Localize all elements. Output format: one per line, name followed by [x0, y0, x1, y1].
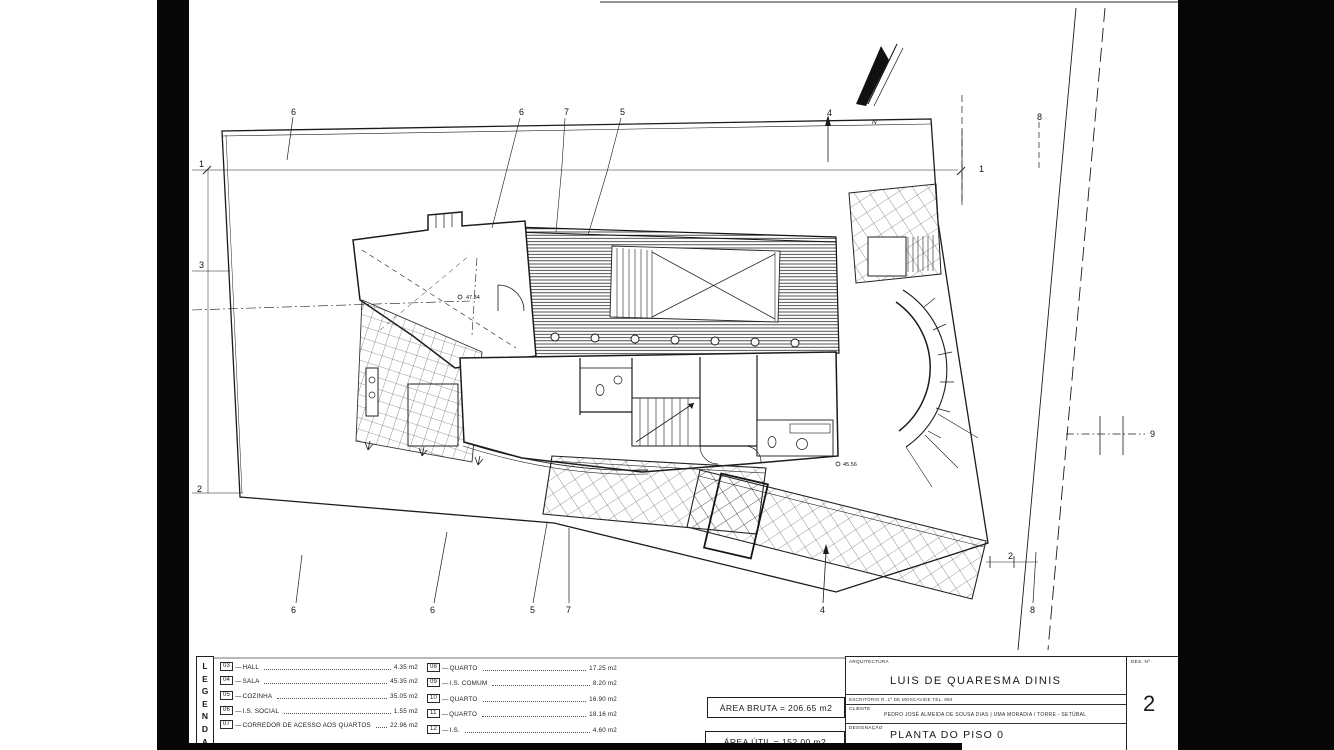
legend-title-letter: E [202, 698, 208, 711]
grid-mark: 8 [1037, 112, 1042, 122]
legend-item-dash: — [442, 727, 449, 734]
legend-item-leader [264, 669, 391, 670]
legend-item-code: 12 [427, 725, 440, 734]
legend-column-2: 08—QUARTO17.25 m209—I.S. COMUM8.20 m210—… [427, 663, 617, 734]
spot-level: 45.56 [843, 462, 857, 468]
entrance-patio [849, 184, 941, 283]
legend-item-code: 09 [427, 678, 440, 687]
legend-item-leader [492, 685, 590, 686]
grid-mark: 6 [291, 107, 296, 117]
sheet-number: 2 [1143, 691, 1155, 717]
grid-mark: 2 [1008, 551, 1013, 561]
legend-item-area: 8.20 m2 [593, 680, 617, 687]
grid-mark: 3 [199, 260, 204, 270]
legend-item: 11—QUARTO18.16 m2 [427, 710, 617, 719]
legend-item-area: 16.90 m2 [589, 696, 617, 703]
legend-item-dash: — [235, 664, 242, 671]
legend-item-name: QUARTO [450, 665, 478, 672]
legend-item-code: 11 [427, 709, 440, 718]
legend-item-dash: — [442, 711, 449, 718]
legend-item-area: 4.60 m2 [593, 727, 617, 734]
legend-item-leader [483, 670, 587, 671]
legend-item-area: 1.55 m2 [394, 708, 418, 715]
designation-label: DESIGNAÇÃO [849, 725, 883, 730]
legend-item: 05—COZINHA35.05 m2 [220, 691, 418, 700]
legend-item-area: 45.35 m2 [390, 678, 418, 685]
legend-item-code: 03 [220, 662, 233, 671]
grid-mark: 2 [197, 484, 202, 494]
grid-mark: 7 [566, 605, 571, 615]
legend-item-dash: — [235, 722, 242, 729]
legend-item-leader [284, 713, 391, 714]
legend-item-dash: — [235, 693, 242, 700]
legend-title-letter: D [202, 723, 208, 736]
grid-mark: 5 [530, 605, 535, 615]
legend-item-code: 06 [220, 706, 233, 715]
legend-item-code: 08 [427, 663, 440, 672]
terrace-strips [543, 456, 986, 599]
legend-item-name: QUARTO [450, 696, 478, 703]
legend-item-area: 35.05 m2 [390, 693, 418, 700]
discipline-label: ARQUITECTURA [849, 659, 889, 664]
roof-hatched-band [512, 227, 839, 363]
curved-wall [896, 290, 978, 487]
legend-item-area: 17.25 m2 [589, 665, 617, 672]
legend-item-leader [465, 732, 590, 733]
floor-plan-drawing: N [0, 0, 1334, 750]
legend-item-leader [264, 683, 387, 684]
legend-item-name: COZINHA [243, 693, 273, 700]
legend-title: LEGENDA [196, 656, 214, 750]
grid-mark: 1 [979, 164, 984, 174]
legend-title-letter: G [202, 685, 209, 698]
legend-item-name: I.S. [450, 727, 460, 734]
legend-item-dash: — [442, 696, 449, 703]
grid-mark: 1 [199, 159, 204, 169]
legend-item-leader [376, 727, 387, 728]
stairs [632, 398, 700, 446]
grid-mark: 7 [564, 107, 569, 117]
legend-title-letter: L [202, 660, 207, 673]
grid-mark: 5 [620, 107, 625, 117]
client-label: CLIENTE [849, 706, 871, 711]
sheet-number-cell: DES. Nº 2 [1126, 657, 1179, 750]
legend-title-letter: N [202, 710, 208, 723]
grid-mark: 6 [430, 605, 435, 615]
legend-item-code: 05 [220, 691, 233, 700]
roof-gable [610, 246, 780, 322]
scan-margin-bottom [189, 743, 962, 750]
area-bruta-box: ÁREA BRUTA = 206.65 m2 [707, 697, 845, 718]
architect-name: LUIS DE QUARESMA DINIS [890, 675, 1061, 687]
legend-item-code: 04 [220, 676, 233, 685]
title-block: ARQUITECTURA LUIS DE QUARESMA DINIS ESCR… [845, 656, 1178, 750]
legend-item-name: SALA [243, 678, 260, 685]
legend-item-dash: — [235, 678, 242, 685]
legend-column-1: 03—HALL4.35 m204—SALA45.35 m205—COZINHA3… [220, 662, 418, 729]
legend-item-name: QUARTO [449, 711, 477, 718]
grid-mark: 6 [291, 605, 296, 615]
scanned-sheet: N [0, 0, 1334, 750]
scan-margin-right [1178, 0, 1334, 750]
scan-margin-left [157, 0, 189, 750]
legend-item-leader [277, 698, 387, 699]
legend-title-letter: E [202, 673, 208, 686]
legend-item-name: CORREDOR DE ACESSO AOS QUARTOS [243, 722, 371, 729]
office-line: ESCRITÓRIO R. 1º DE MOSCAVIDE TEL. 994 [849, 697, 953, 702]
designation-text: PLANTA DO PISO 0 [890, 729, 1004, 741]
legend-item-name: HALL [243, 664, 260, 671]
legend-item-dash: — [442, 665, 449, 672]
legend-item-area: 22.96 m2 [390, 722, 418, 729]
legend-item-name: I.S. COMUM [450, 680, 488, 687]
north-label: N [872, 119, 877, 126]
grid-mark: 4 [820, 605, 825, 615]
spot-level: 47.34 [466, 295, 480, 301]
bathroom-right [757, 420, 833, 456]
legend-item-leader [483, 701, 587, 702]
grid-mark: 4 [827, 108, 832, 118]
legend-item-dash: — [442, 680, 449, 687]
legend-item-area: 18.16 m2 [589, 711, 617, 718]
legend-item: 03—HALL4.35 m2 [220, 662, 418, 671]
legend-item: 06—I.S. SOCIAL1.55 m2 [220, 706, 418, 715]
client-line: PEDRO JOSÉ ALMEIDA DE SOUSA DIAS | UMA M… [884, 712, 1086, 718]
legend-item-code: 10 [427, 694, 440, 703]
legend-item-code: 07 [220, 720, 233, 729]
legend-item-name: I.S. SOCIAL [243, 708, 280, 715]
legend-item: 04—SALA45.35 m2 [220, 677, 418, 686]
grid-mark: 8 [1030, 605, 1035, 615]
sheet-number-label: DES. Nº [1131, 659, 1150, 664]
radial-paving [906, 414, 978, 487]
legend-item-area: 4.35 m2 [394, 664, 418, 671]
grid-mark: 6 [519, 107, 524, 117]
legend-item: 09—I.S. COMUM8.20 m2 [427, 679, 617, 688]
legend-item: 08—QUARTO17.25 m2 [427, 663, 617, 672]
legend-item-leader [482, 716, 586, 717]
legend-item: 07—CORREDOR DE ACESSO AOS QUARTOS22.96 m… [220, 721, 418, 730]
grid-mark: 9 [1150, 429, 1155, 439]
area-bruta-text: ÁREA BRUTA = 206.65 m2 [720, 703, 833, 713]
north-arrow-icon: N [856, 44, 903, 126]
legend-item: 12—I.S.4.60 m2 [427, 725, 617, 734]
legend-item: 10—QUARTO16.90 m2 [427, 694, 617, 703]
legend-item-dash: — [235, 708, 242, 715]
